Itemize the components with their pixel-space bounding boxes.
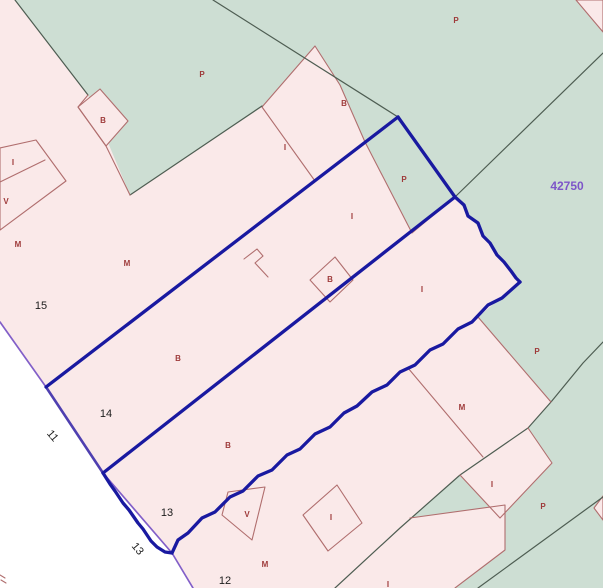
land-code: M (15, 240, 22, 249)
land-code: P (534, 347, 540, 356)
cadastral-map: PPBBIIPVIMMBIPBMBIPVIMI15141312111342750 (0, 0, 603, 588)
cadastral-map-stage: PPBBIIPVIMMBIPBMBIPVIMI15141312111342750 (0, 0, 603, 588)
land-code: I (12, 158, 14, 167)
land-code: I (387, 580, 389, 588)
land-code: I (421, 285, 423, 294)
land-code: B (100, 116, 106, 125)
land-code: V (3, 197, 9, 206)
land-code: B (225, 441, 231, 450)
land-code: M (459, 403, 466, 412)
land-code: B (175, 354, 181, 363)
sheet-number: 42750 (550, 179, 584, 193)
parcel-number: 15 (35, 300, 47, 312)
land-code: I (284, 143, 286, 152)
parcel-number: 13 (161, 507, 173, 519)
land-code: M (262, 560, 269, 569)
land-code: B (341, 99, 347, 108)
land-code: B (327, 275, 333, 284)
parcel-number: 12 (219, 575, 231, 587)
land-code: M (124, 259, 131, 268)
parcel-number: 14 (100, 408, 112, 420)
land-code: P (401, 175, 407, 184)
land-code: P (453, 16, 459, 25)
land-code: V (244, 510, 250, 519)
land-code: I (330, 513, 332, 522)
land-code: P (199, 70, 205, 79)
land-code: P (540, 502, 546, 511)
land-code: I (351, 212, 353, 221)
land-code: I (491, 480, 493, 489)
